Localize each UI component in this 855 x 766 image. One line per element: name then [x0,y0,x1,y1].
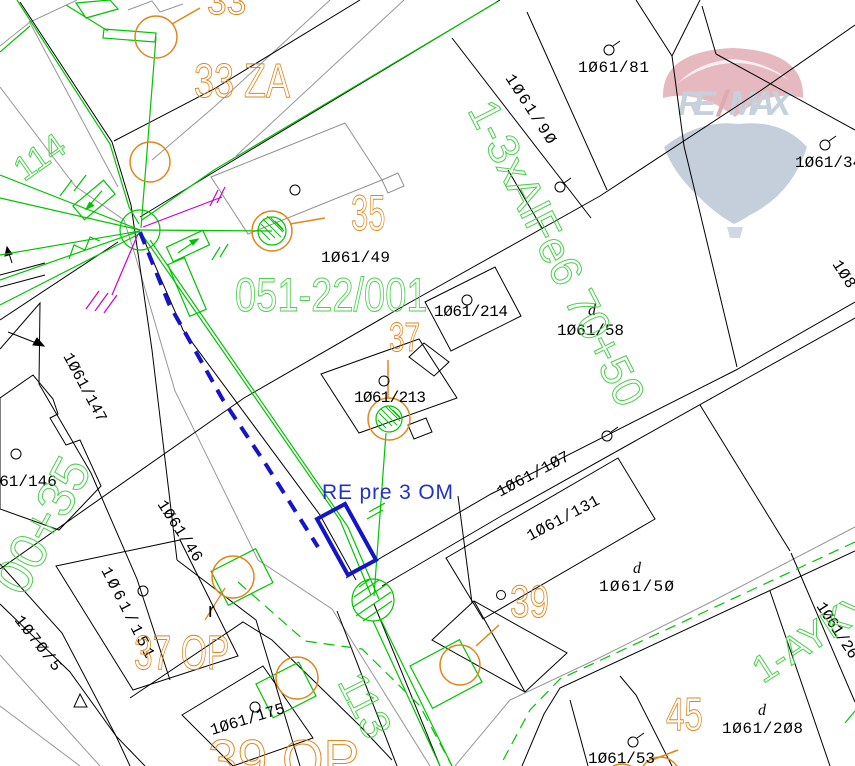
svg-text:33: 33 [207,0,246,22]
svg-text:1Ø61/49: 1Ø61/49 [321,249,390,267]
svg-text:1Ø61/213: 1Ø61/213 [354,389,426,407]
svg-text:39: 39 [510,576,549,627]
svg-text:1Ø61/214: 1Ø61/214 [434,303,508,321]
svg-text:RE pre 3 OM: RE pre 3 OM [322,481,453,504]
svg-text:d: d [633,560,642,577]
svg-text:051-22/001: 051-22/001 [235,269,428,322]
svg-text:d: d [758,702,767,719]
svg-text:1Ø61/2Ø8: 1Ø61/2Ø8 [722,720,803,738]
svg-text:35: 35 [351,184,385,240]
svg-text:RE: RE [678,85,717,123]
svg-text:1Ø61/5Ø: 1Ø61/5Ø [599,578,674,596]
svg-text:r: r [208,600,215,622]
svg-text:1Ø61/34: 1Ø61/34 [795,154,855,172]
svg-text:1Ø61/53: 1Ø61/53 [588,750,655,766]
svg-text:1Ø61/81: 1Ø61/81 [578,59,649,77]
svg-text:45: 45 [666,690,703,740]
svg-text:33 ZA: 33 ZA [194,54,291,107]
svg-text:39 OP: 39 OP [208,729,359,766]
svg-text:37 OP: 37 OP [134,625,229,679]
